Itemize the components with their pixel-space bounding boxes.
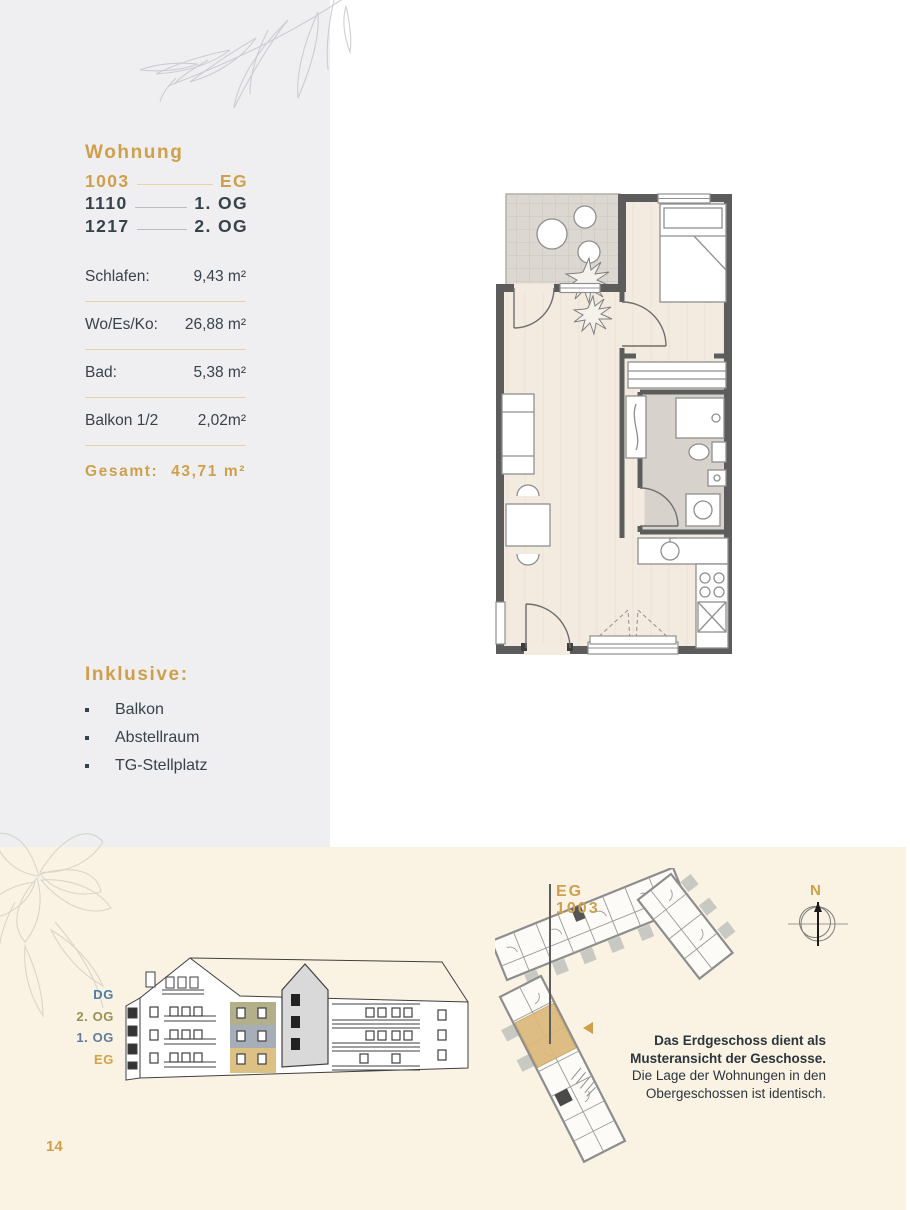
floor-label-og1: 1. OG [50, 1027, 114, 1049]
leaf-decoration [138, 0, 356, 128]
callout-floor: EG [556, 884, 600, 901]
area-label: Bad: [85, 364, 117, 382]
page-number: 14 [46, 1138, 63, 1155]
unit-number: 1110 [85, 193, 128, 214]
bullet-icon [85, 736, 89, 740]
unit-row-divider [137, 229, 188, 230]
chair-icon [574, 206, 596, 228]
area-row-wohnen: Wo/Es/Ko: 26,88 m² [85, 302, 246, 350]
wardrobe-icon [628, 362, 726, 388]
brochure-page: Wohnung 1003 EG 1110 1. OG 1217 2. OG Sc… [0, 0, 910, 1210]
area-row-balkon: Balkon 1/2 2,02m² [85, 398, 246, 446]
area-value: 2,02m² [198, 412, 246, 430]
site-plan [495, 868, 785, 1193]
round-table-icon [537, 219, 567, 249]
list-item: Balkon [85, 696, 207, 724]
unit-row-divider [137, 184, 213, 185]
note-line: Das Erdgeschoss dient als [600, 1032, 826, 1050]
area-row-bad: Bad: 5,38 m² [85, 350, 246, 398]
inclusive-heading: Inklusive: [85, 664, 189, 686]
list-item: TG-Stellplatz [85, 752, 207, 780]
unit-floor: EG [220, 171, 248, 192]
bullet-icon [85, 764, 89, 768]
stair-tower [282, 964, 328, 1067]
area-value: 26,88 m² [185, 316, 246, 334]
unit-row-og2: 1217 2. OG [85, 215, 248, 238]
building-elevation [124, 950, 472, 1090]
inclusive-list: Balkon Abstellraum TG-Stellplatz [85, 696, 207, 780]
apartment-floor-plan [490, 190, 740, 658]
daybed-icon [502, 394, 534, 474]
window-bench [590, 636, 676, 644]
shower-icon [676, 398, 724, 438]
area-label: Wo/Es/Ko: [85, 316, 158, 334]
apartment-heading: Wohnung [85, 142, 183, 164]
unit-pointer-icon [583, 1022, 593, 1034]
unit-callout: EG 1003 [556, 884, 600, 917]
unit-number: 1217 [85, 216, 130, 237]
bullet-icon [85, 708, 89, 712]
note-text: Das Erdgeschoss dient als Musteransicht … [600, 1032, 826, 1102]
floor-label-dg: DG [50, 984, 114, 1006]
unit-row-divider [135, 207, 188, 208]
list-item-label: Abstellraum [115, 729, 199, 747]
list-item-label: Balkon [115, 701, 164, 719]
note-line: Obergeschossen ist identisch. [600, 1085, 826, 1103]
area-table: Schlafen: 9,43 m² Wo/Es/Ko: 26,88 m² Bad… [85, 254, 246, 481]
bed-icon [660, 204, 726, 302]
area-label: Schlafen: [85, 268, 150, 286]
floor-label-eg: EG [50, 1049, 114, 1071]
elevation-floor-labels: DG 2. OG 1. OG EG [50, 984, 114, 1070]
unit-floor: 2. OG [194, 216, 248, 237]
note-line: Musteransicht der Geschosse. [600, 1050, 826, 1068]
area-row-schlafen: Schlafen: 9,43 m² [85, 254, 246, 302]
north-label: N [810, 882, 822, 899]
area-value: 5,38 m² [193, 364, 246, 382]
floor-label-og2: 2. OG [50, 1006, 114, 1028]
list-item-label: TG-Stellplatz [115, 757, 207, 775]
north-compass-icon [788, 900, 848, 950]
note-line: Die Lage der Wohnungen in den [600, 1067, 826, 1085]
area-value: 9,43 m² [193, 268, 246, 286]
callout-leader-line [549, 884, 551, 1044]
unit-row-og1: 1110 1. OG [85, 193, 248, 216]
list-item: Abstellraum [85, 724, 207, 752]
callout-number: 1003 [556, 901, 600, 918]
total-label: Gesamt: [85, 463, 158, 481]
apartment-unit-list: 1003 EG 1110 1. OG 1217 2. OG [85, 170, 248, 238]
appliance-icon [698, 602, 726, 632]
hall-cabinet-icon [626, 396, 646, 458]
sink-icon [708, 470, 726, 486]
area-total-row: Gesamt: 43,71 m² [85, 446, 246, 481]
area-label: Balkon 1/2 [85, 412, 158, 430]
washer-icon [686, 494, 720, 526]
unit-number: 1003 [85, 171, 130, 192]
total-value: 43,71 m² [171, 463, 246, 481]
unit-floor: 1. OG [194, 193, 248, 214]
unit-row-eg: 1003 EG [85, 170, 248, 193]
